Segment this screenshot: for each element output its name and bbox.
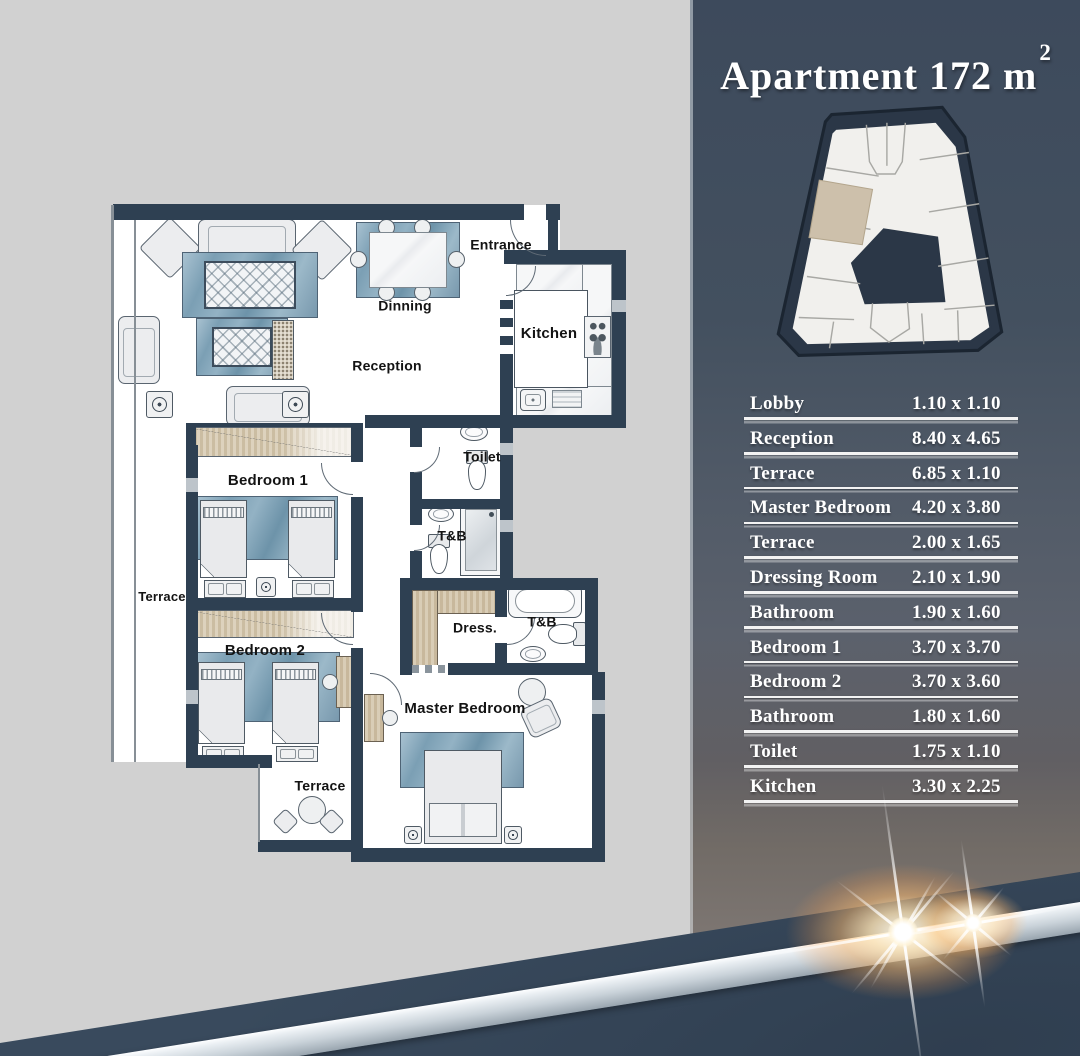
wall <box>585 578 598 675</box>
wall <box>410 427 422 447</box>
room-dims: 3.30 x 2.25 <box>912 777 1001 796</box>
bed <box>288 500 335 578</box>
terrace-glass-line <box>258 764 260 842</box>
window-slit <box>186 690 198 704</box>
wardrobe <box>412 590 438 666</box>
room-dims: 3.70 x 3.60 <box>912 672 1001 691</box>
wall <box>258 840 362 852</box>
window-slit <box>612 300 626 312</box>
table-row: Bedroom 13.70 x 3.70 <box>744 633 1018 668</box>
ottoman <box>204 580 246 598</box>
wall <box>410 472 422 499</box>
room-label-reception: Reception <box>352 359 421 374</box>
room-dims: 6.85 x 1.10 <box>912 464 1001 483</box>
dining-chair <box>350 251 367 268</box>
wall <box>410 509 422 525</box>
room-label-dress: Dress. <box>453 621 497 636</box>
wall <box>365 415 626 428</box>
table-row: Bathroom1.90 x 1.60 <box>744 598 1018 633</box>
wall <box>448 663 503 675</box>
table-row: Bedroom 23.70 x 3.60 <box>744 667 1018 702</box>
bed <box>198 662 245 744</box>
wall <box>351 648 363 762</box>
desk-chair <box>322 674 338 690</box>
bed <box>272 662 319 744</box>
wall <box>410 551 422 578</box>
sofa <box>118 316 160 384</box>
wall <box>188 423 363 427</box>
wall <box>500 355 513 415</box>
kitchen-sink <box>520 389 546 411</box>
room-dims: 8.40 x 4.65 <box>912 429 1001 448</box>
sink <box>520 646 546 662</box>
dashed-wall-opening <box>500 300 513 355</box>
terrace-glass-line <box>111 205 114 762</box>
room-label-tb1: T&B <box>437 529 466 544</box>
wall <box>612 250 626 428</box>
table-row: Reception8.40 x 4.65 <box>744 424 1018 459</box>
wall <box>186 598 363 610</box>
room-dims: 1.10 x 1.10 <box>912 394 1001 413</box>
room-label-terrace-bottom: Terrace <box>295 779 346 794</box>
room-dims: 2.10 x 1.90 <box>912 568 1001 587</box>
highlighted-unit <box>809 180 873 245</box>
window-slit <box>500 520 513 532</box>
room-label-terrace-side: Terrace <box>138 590 185 604</box>
window-slit <box>186 478 198 492</box>
room-name: Toilet <box>750 742 798 761</box>
table-row: Bathroom1.80 x 1.60 <box>744 702 1018 737</box>
wall <box>495 643 507 663</box>
bed <box>200 500 247 578</box>
side-table <box>146 391 173 418</box>
room-name: Kitchen <box>750 777 817 796</box>
table-row: Lobby1.10 x 1.10 <box>744 389 1018 424</box>
wall <box>351 848 605 862</box>
room-dims: 1.75 x 1.10 <box>912 742 1001 761</box>
table-row: Kitchen3.30 x 2.25 <box>744 772 1018 807</box>
room-label-bedroom2: Bedroom 2 <box>225 643 305 659</box>
room-label-entrance: Entrance <box>470 238 532 253</box>
rug <box>204 261 296 309</box>
wall <box>113 204 524 220</box>
master-bed <box>424 750 502 844</box>
room-label-tb2: T&B <box>527 615 556 630</box>
title-text: Apartment 172 m <box>720 53 1037 98</box>
side-table <box>256 577 276 597</box>
room-label-kitchen: Kitchen <box>521 326 577 342</box>
wall <box>351 427 363 462</box>
nightstand <box>504 826 522 844</box>
room-label-toilet: Toilet <box>463 450 501 465</box>
apartment-flyer: Entrance Dinning Kitchen Reception Toile… <box>0 0 1080 1056</box>
terrace-glass-line <box>134 220 136 762</box>
wardrobe <box>190 427 358 457</box>
room-name: Terrace <box>750 533 815 552</box>
room-label-master: Master Bedroom <box>404 701 525 717</box>
dashed-wall-opening <box>412 665 448 673</box>
wall <box>400 578 598 590</box>
room-name: Bedroom 1 <box>750 638 842 657</box>
room-name: Bedroom 2 <box>750 672 842 691</box>
wall <box>351 762 363 860</box>
room-dims: 4.20 x 3.80 <box>912 498 1001 517</box>
room-name: Master Bedroom <box>750 498 891 517</box>
table-row: Terrace6.85 x 1.10 <box>744 459 1018 494</box>
wall <box>400 663 412 675</box>
wall <box>548 216 558 252</box>
dining-chair <box>448 251 465 268</box>
room-name: Dressing Room <box>750 568 878 587</box>
rug <box>212 327 272 367</box>
desk-chair <box>382 710 398 726</box>
room-name: Terrace <box>750 464 815 483</box>
room-dims: 2.00 x 1.65 <box>912 533 1001 552</box>
ottoman <box>276 746 318 762</box>
title-superscript: 2 <box>1039 40 1052 65</box>
room-dims: 1.90 x 1.60 <box>912 603 1001 622</box>
window-slit <box>500 443 513 455</box>
room-name: Bathroom <box>750 603 834 622</box>
table-row: Dressing Room2.10 x 1.90 <box>744 563 1018 598</box>
room-dims: 1.80 x 1.60 <box>912 707 1001 726</box>
stove-icon <box>584 316 611 358</box>
side-table <box>282 391 309 418</box>
room-name: Bathroom <box>750 707 834 726</box>
table-row: Master Bedroom4.20 x 3.80 <box>744 493 1018 528</box>
room-name: Reception <box>750 429 834 448</box>
window-slit <box>592 700 605 714</box>
ottoman <box>292 580 334 598</box>
table-row: Terrace2.00 x 1.65 <box>744 528 1018 563</box>
drain-board <box>552 390 582 408</box>
dining-table <box>369 232 447 288</box>
panel-separator <box>690 0 693 948</box>
building-footprint-diagram <box>768 104 1014 366</box>
room-label-dinning: Dinning <box>378 299 432 314</box>
wall <box>495 590 507 617</box>
wall <box>410 499 503 509</box>
nightstand <box>404 826 422 844</box>
room-name: Lobby <box>750 394 804 413</box>
console-cabinet <box>272 320 294 380</box>
wall <box>351 497 363 612</box>
room-dims: 3.70 x 3.70 <box>912 638 1001 657</box>
room-label-bedroom1: Bedroom 1 <box>228 473 308 489</box>
dimensions-table: Lobby1.10 x 1.10 Reception8.40 x 4.65 Te… <box>744 389 1018 807</box>
table-row: Toilet1.75 x 1.10 <box>744 737 1018 772</box>
page-title: Apartment 172 m2 <box>690 54 1080 98</box>
wall <box>503 663 598 675</box>
